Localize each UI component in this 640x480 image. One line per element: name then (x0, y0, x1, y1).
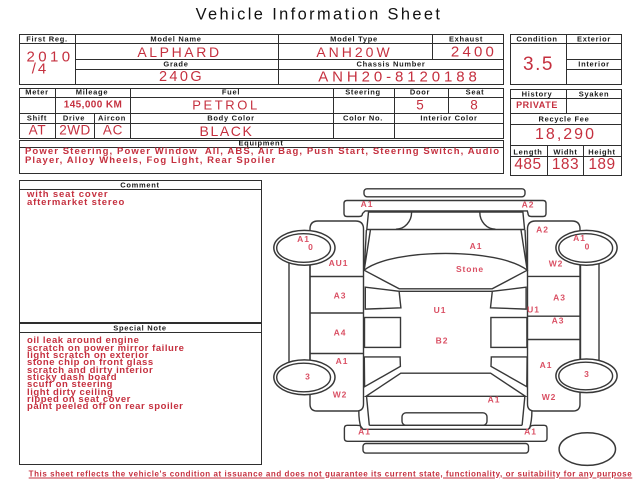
svg-text:B2: B2 (436, 336, 449, 346)
svg-text:3: 3 (584, 369, 590, 379)
svg-text:A2: A2 (522, 200, 535, 210)
svg-text:W2: W2 (549, 259, 564, 269)
svg-text:A3: A3 (553, 293, 566, 303)
svg-text:U1: U1 (527, 305, 540, 315)
svg-text:W2: W2 (542, 392, 557, 402)
svg-text:A1: A1 (336, 356, 349, 366)
svg-text:A1: A1 (524, 427, 537, 437)
svg-text:A3: A3 (334, 291, 347, 301)
svg-text:U1: U1 (434, 305, 447, 315)
svg-text:A1: A1 (540, 360, 553, 370)
svg-text:A2: A2 (536, 225, 549, 235)
svg-text:AU1: AU1 (329, 258, 349, 268)
svg-text:0: 0 (308, 242, 314, 252)
svg-text:0: 0 (585, 242, 591, 252)
svg-text:3: 3 (305, 372, 311, 382)
svg-text:A1: A1 (470, 241, 483, 251)
svg-text:A1: A1 (488, 395, 501, 405)
svg-text:Stone: Stone (456, 264, 484, 274)
svg-text:A1: A1 (361, 199, 374, 209)
svg-text:A4: A4 (334, 328, 347, 338)
svg-text:A1: A1 (358, 427, 371, 437)
svg-text:W2: W2 (333, 390, 348, 400)
svg-text:A3: A3 (552, 316, 565, 326)
